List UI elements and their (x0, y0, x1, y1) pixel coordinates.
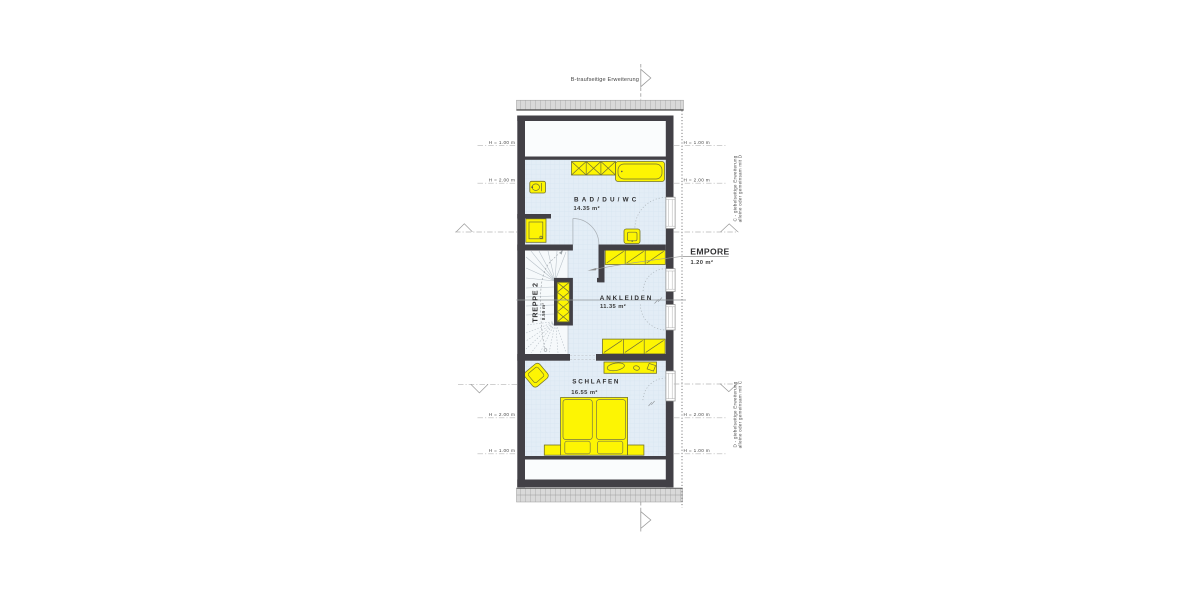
svg-text:11.35 m²: 11.35 m² (600, 303, 626, 310)
svg-text:alleine oder gemeinsam mit C: alleine oder gemeinsam mit C (737, 380, 742, 448)
svg-text:H = 2.00 m: H = 2.00 m (489, 177, 516, 182)
svg-text:H = 1.00 m: H = 1.00 m (684, 140, 711, 145)
svg-text:H = 2.00 m: H = 2.00 m (684, 177, 711, 182)
svg-text:BAD/DU/WC: BAD/DU/WC (574, 197, 640, 204)
svg-text:8.59 m²: 8.59 m² (541, 303, 546, 320)
svg-text:1.20 m²: 1.20 m² (691, 259, 714, 266)
svg-text:EMPORE: EMPORE (690, 247, 729, 257)
svg-text:H = 1.00 m: H = 1.00 m (684, 448, 711, 453)
svg-text:TREPPE 2: TREPPE 2 (530, 282, 539, 322)
svg-text:SCHLAFEN: SCHLAFEN (572, 379, 620, 386)
svg-text:B-traufseitige Erweiterung: B-traufseitige Erweiterung (571, 77, 639, 83)
svg-text:16.55 m²: 16.55 m² (571, 389, 597, 396)
svg-text:H = 2.00 m: H = 2.00 m (489, 412, 516, 417)
svg-text:H = 1.00 m: H = 1.00 m (489, 140, 516, 145)
svg-text:H = 2.00 m: H = 2.00 m (684, 412, 711, 417)
svg-text:alleine oder gemeinsam mit D: alleine oder gemeinsam mit D (737, 154, 742, 222)
svg-text:H = 1.00 m: H = 1.00 m (489, 448, 516, 453)
svg-text:14.35 m²: 14.35 m² (574, 205, 600, 212)
svg-text:ANKLEIDEN: ANKLEIDEN (600, 295, 653, 302)
